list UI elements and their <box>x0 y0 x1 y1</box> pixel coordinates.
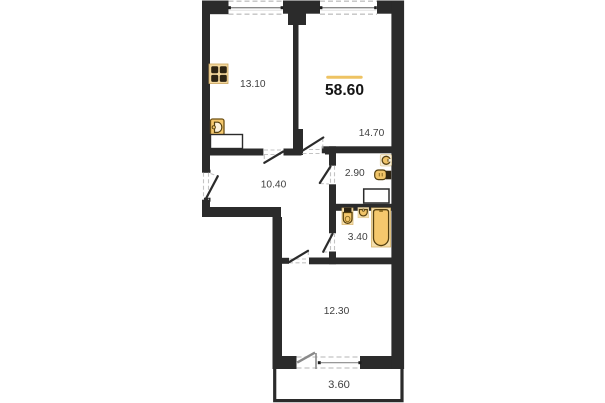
svg-text:14.70: 14.70 <box>359 128 385 139</box>
svg-text:3.60: 3.60 <box>328 379 350 391</box>
svg-text:12.30: 12.30 <box>324 306 350 317</box>
svg-text:10.40: 10.40 <box>261 180 287 191</box>
svg-text:2.90: 2.90 <box>345 168 365 179</box>
svg-text:58.60: 58.60 <box>325 82 364 99</box>
svg-text:3.40: 3.40 <box>348 232 368 243</box>
svg-text:13.10: 13.10 <box>240 79 266 90</box>
